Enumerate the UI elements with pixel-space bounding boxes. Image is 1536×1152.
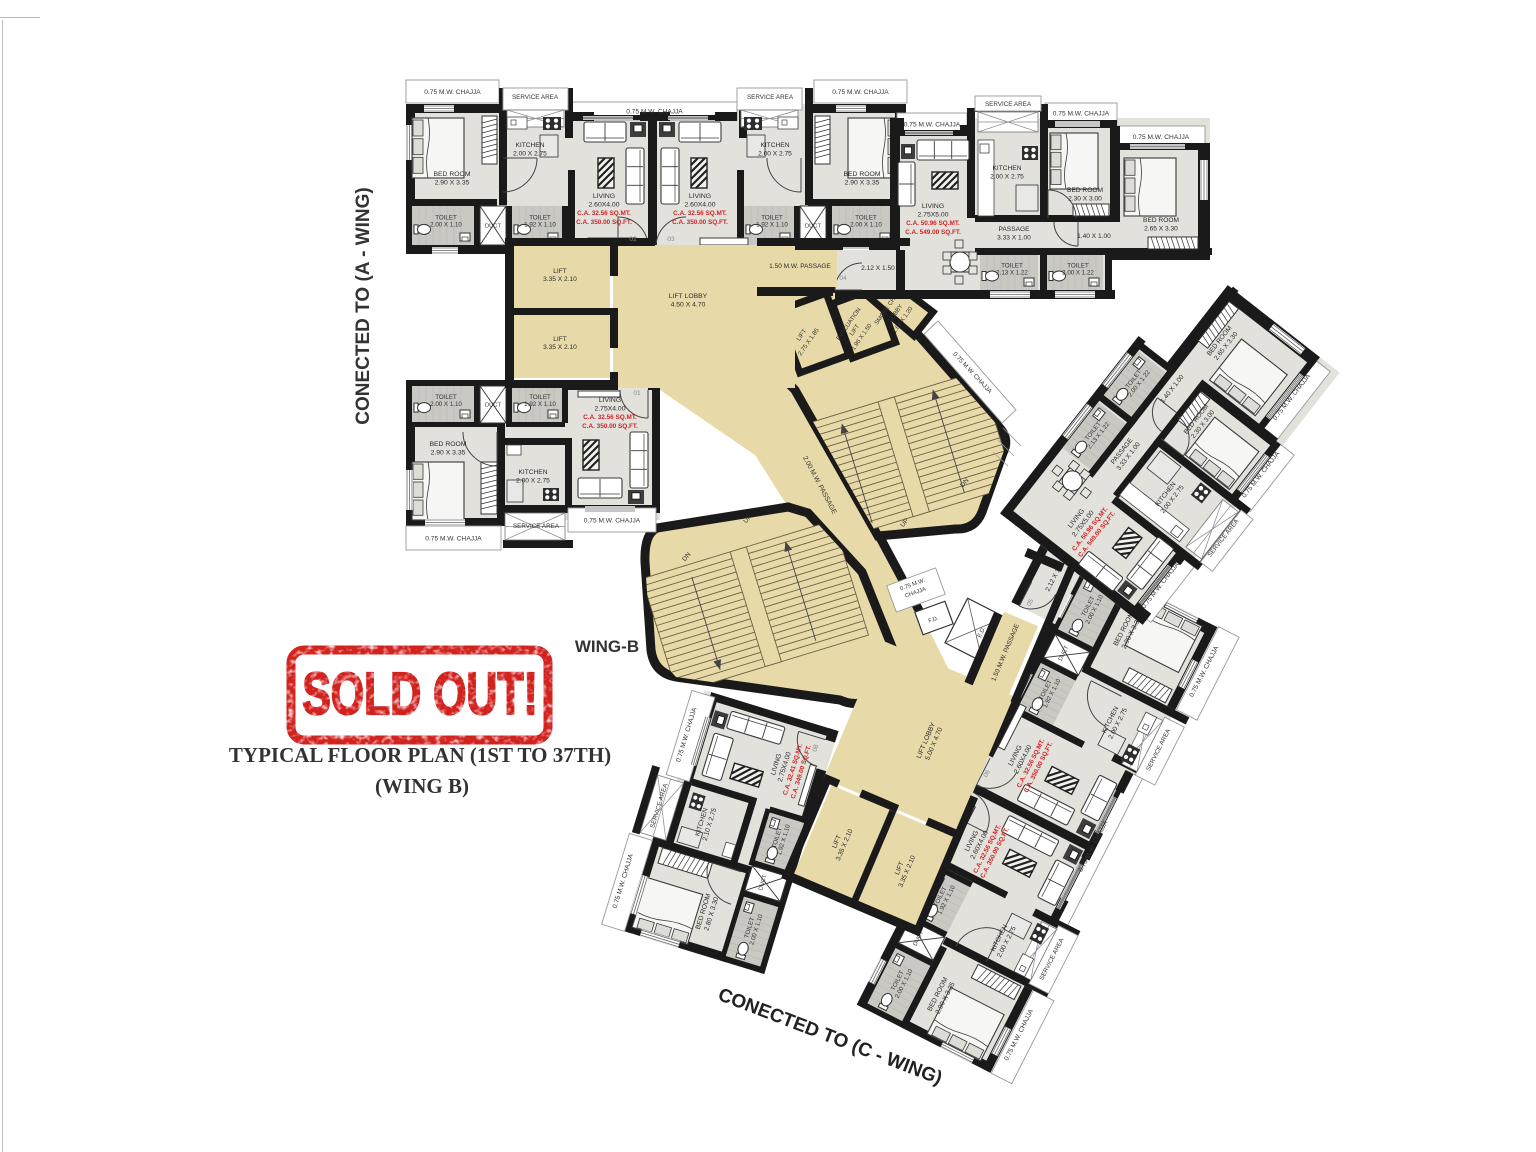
svg-text:KITCHEN: KITCHEN <box>519 469 548 476</box>
svg-text:WING-B: WING-B <box>575 637 639 656</box>
svg-text:C.A. 350.00 SQ.FT.: C.A. 350.00 SQ.FT. <box>672 219 728 226</box>
svg-text:SERVICE AREA: SERVICE AREA <box>985 101 1032 108</box>
svg-text:2.00 X 2.75: 2.00 X 2.75 <box>758 150 792 157</box>
svg-text:3.35 X 2.10: 3.35 X 2.10 <box>543 276 577 283</box>
svg-text:2.00 X 2.75: 2.00 X 2.75 <box>513 150 547 157</box>
svg-text:2.00 X 1.22: 2.00 X 1.22 <box>1062 270 1094 277</box>
svg-text:(WING B): (WING B) <box>375 774 469 798</box>
svg-text:KITCHEN: KITCHEN <box>761 142 790 149</box>
svg-text:PASSAGE: PASSAGE <box>998 226 1030 233</box>
svg-text:KITCHEN: KITCHEN <box>516 142 545 149</box>
svg-text:BED ROOM: BED ROOM <box>433 171 470 178</box>
svg-text:2.60X4.00: 2.60X4.00 <box>685 202 716 209</box>
svg-text:LIFT: LIFT <box>553 268 567 275</box>
svg-text:2.00 X 2.75: 2.00 X 2.75 <box>990 173 1024 180</box>
svg-text:C.A. 32.56 SQ.MT.: C.A. 32.56 SQ.MT. <box>673 210 727 217</box>
svg-text:2.90 X 3.35: 2.90 X 3.35 <box>845 180 880 187</box>
svg-text:3.35 X 2.10: 3.35 X 2.10 <box>543 344 577 351</box>
svg-text:LIVING: LIVING <box>922 203 944 210</box>
svg-text:C.A. 350.00 SQ.FT.: C.A. 350.00 SQ.FT. <box>576 219 632 226</box>
svg-text:LIVING: LIVING <box>599 397 621 404</box>
svg-text:TOILET: TOILET <box>529 394 551 401</box>
svg-text:01: 01 <box>633 390 641 397</box>
svg-text:C.A. 32.56 SQ.MT.: C.A. 32.56 SQ.MT. <box>577 210 631 217</box>
svg-text:0.75 M.W. CHAJJA: 0.75 M.W. CHAJJA <box>904 121 961 128</box>
svg-text:TOILET: TOILET <box>1067 263 1089 270</box>
svg-text:BED ROOM: BED ROOM <box>1067 187 1103 194</box>
svg-text:1.50 M.W. PASSAGE: 1.50 M.W. PASSAGE <box>769 263 831 270</box>
svg-text:0.75 M.W. CHAJJA: 0.75 M.W. CHAJJA <box>584 517 641 524</box>
svg-text:0.75 M.W. CHAJJA: 0.75 M.W. CHAJJA <box>832 89 889 96</box>
svg-text:LIVING: LIVING <box>689 193 711 200</box>
svg-text:TOILET: TOILET <box>855 215 877 222</box>
svg-text:2.60X4.00: 2.60X4.00 <box>589 202 620 209</box>
svg-text:LIFT LOBBY: LIFT LOBBY <box>669 293 708 300</box>
svg-text:03: 03 <box>667 236 675 243</box>
svg-text:BED ROOM: BED ROOM <box>429 441 466 448</box>
svg-text:02: 02 <box>629 236 637 243</box>
svg-text:TOILET: TOILET <box>529 215 551 222</box>
svg-text:SERVICE AREA: SERVICE AREA <box>747 94 794 101</box>
svg-text:2.30 X 3.00: 2.30 X 3.00 <box>1068 195 1102 202</box>
svg-text:2.00 X 2.75: 2.00 X 2.75 <box>516 477 550 484</box>
svg-text:04: 04 <box>839 275 847 282</box>
svg-text:2.90 X 3.35: 2.90 X 3.35 <box>435 180 470 187</box>
svg-text:TOILET: TOILET <box>761 215 783 222</box>
svg-text:2.65 X 3.30: 2.65 X 3.30 <box>1144 225 1178 232</box>
svg-text:LIFT: LIFT <box>553 336 567 343</box>
svg-text:DUCT: DUCT <box>485 403 502 409</box>
svg-text:KITCHEN: KITCHEN <box>993 165 1022 172</box>
svg-text:BED ROOM: BED ROOM <box>843 171 880 178</box>
svg-text:C.A. 549.00 SQ.FT.: C.A. 549.00 SQ.FT. <box>905 229 961 236</box>
svg-text:DUCT: DUCT <box>485 224 502 230</box>
svg-text:SERVICE AREA: SERVICE AREA <box>513 523 560 530</box>
svg-text:2.00 X 1.10: 2.00 X 1.10 <box>430 222 462 229</box>
svg-text:0.75 M.W. CHAJJA: 0.75 M.W. CHAJJA <box>1133 134 1190 141</box>
svg-text:2.12 X 1.50: 2.12 X 1.50 <box>861 265 895 272</box>
svg-text:SERVICE AREA: SERVICE AREA <box>512 94 559 101</box>
svg-text:4.50 X 4.70: 4.50 X 4.70 <box>671 302 706 309</box>
svg-text:1.92 X 1.10: 1.92 X 1.10 <box>524 222 556 229</box>
svg-text:C.A. 50.96 SQ.MT.: C.A. 50.96 SQ.MT. <box>906 220 960 227</box>
svg-text:SOLD OUT!: SOLD OUT! <box>302 661 538 728</box>
svg-text:2.00 X 1.10: 2.00 X 1.10 <box>850 222 882 229</box>
svg-text:1.92 X 1.10: 1.92 X 1.10 <box>524 401 556 408</box>
svg-text:0.75 M.W. CHAJJA: 0.75 M.W. CHAJJA <box>425 535 482 542</box>
svg-text:2.13 X 1.22: 2.13 X 1.22 <box>996 270 1028 277</box>
svg-text:1.92 X 1.10: 1.92 X 1.10 <box>756 222 788 229</box>
svg-text:C.A. 32.56 SQ.MT.: C.A. 32.56 SQ.MT. <box>583 414 637 421</box>
svg-text:TYPICAL FLOOR PLAN (1ST TO 37T: TYPICAL FLOOR PLAN (1ST TO 37TH) <box>229 743 611 767</box>
svg-text:0.75 M.W. CHAJJA: 0.75 M.W. CHAJJA <box>1053 110 1110 117</box>
svg-text:2.75X5.00: 2.75X5.00 <box>918 212 949 219</box>
svg-text:2.90 X 3.35: 2.90 X 3.35 <box>431 450 466 457</box>
svg-text:BED ROOM: BED ROOM <box>1143 217 1179 224</box>
svg-text:3.33 X 1.00: 3.33 X 1.00 <box>997 234 1031 241</box>
svg-text:TOILET: TOILET <box>435 215 457 222</box>
svg-text:0.75 M.W. CHAJJA: 0.75 M.W. CHAJJA <box>424 89 481 96</box>
svg-text:TOILET: TOILET <box>435 394 457 401</box>
svg-text:C.A. 350.00 SQ.FT.: C.A. 350.00 SQ.FT. <box>582 423 638 430</box>
svg-text:2.75X4.00: 2.75X4.00 <box>595 406 626 413</box>
svg-text:DUCT: DUCT <box>805 224 822 230</box>
svg-text:2.00 X 1.10: 2.00 X 1.10 <box>430 401 462 408</box>
svg-text:CONECTED TO (A - WING): CONECTED TO (A - WING) <box>353 187 374 424</box>
svg-text:LIVING: LIVING <box>593 193 615 200</box>
svg-text:1.40 X 1.00: 1.40 X 1.00 <box>1077 233 1111 240</box>
svg-text:TOILET: TOILET <box>1001 263 1023 270</box>
svg-text:0.75 M.W. CHAJJA: 0.75 M.W. CHAJJA <box>626 108 683 115</box>
